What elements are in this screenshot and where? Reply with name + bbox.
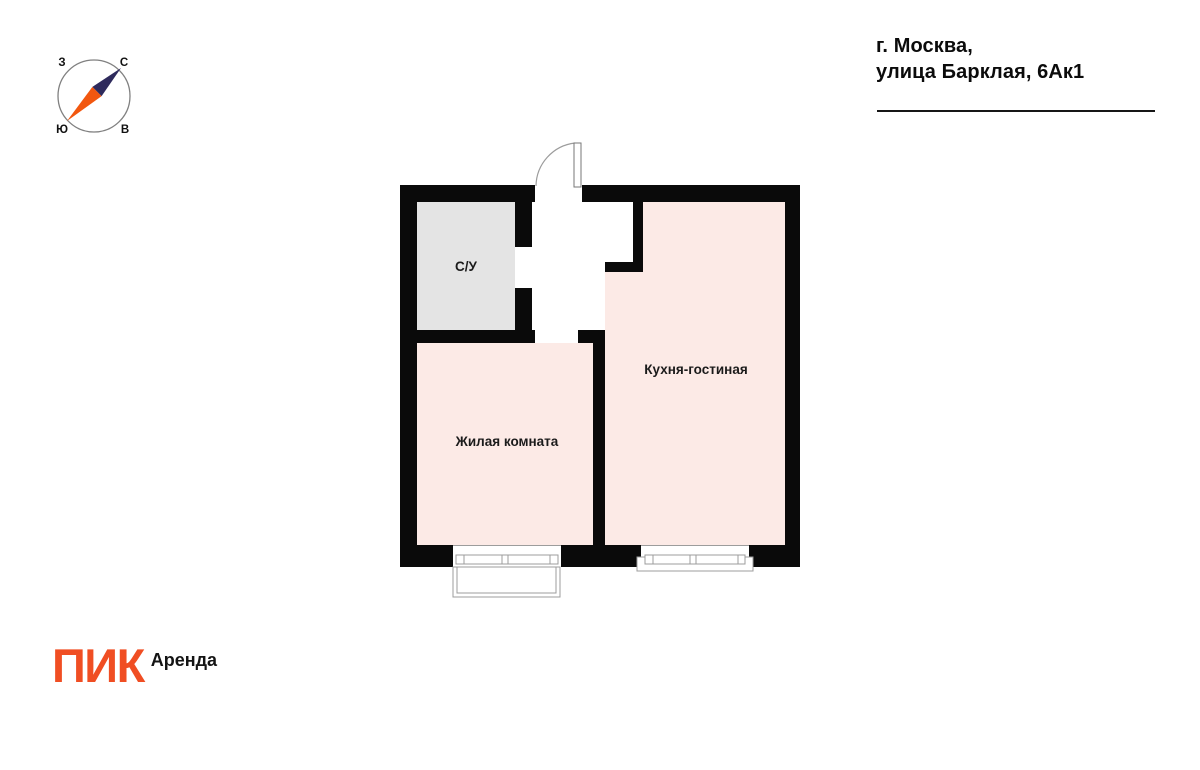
wall-right — [785, 185, 800, 567]
wall-top-right — [582, 185, 800, 202]
room-label-kitchen: Кухня-гостиная — [644, 362, 747, 377]
compass-label-west: З — [58, 57, 65, 69]
compass-label-north: С — [120, 57, 128, 69]
window-living-frame — [456, 555, 558, 564]
compass-label-south: Ю — [56, 124, 68, 136]
wall-bathroom-right-upper — [515, 202, 532, 247]
window-living — [453, 546, 561, 598]
wall-living-kitchen — [593, 330, 605, 545]
pik-logo: ПИК — [52, 643, 144, 689]
wall-kitchen-stub — [605, 262, 643, 272]
compass-label-east: В — [121, 124, 129, 136]
compass-needle-south — [67, 87, 102, 121]
wall-bathroom-bottom — [400, 330, 535, 343]
wall-kitchen-vertical — [633, 202, 643, 272]
compass-rose: З С Ю В — [40, 42, 150, 142]
wall-top-left — [400, 185, 535, 202]
balcony-inner — [457, 567, 556, 593]
room-label-living: Жилая комната — [455, 434, 559, 449]
address-divider — [877, 110, 1155, 112]
floor-plan: С/У Жилая комната Кухня-гостиная — [380, 130, 820, 610]
window-kitchen — [637, 546, 753, 572]
address-line-2: улица Барклая, 6Ак1 — [876, 59, 1166, 85]
room-label-bathroom: С/У — [455, 259, 478, 274]
door-leaf — [574, 143, 581, 187]
wall-bottom-right — [749, 545, 800, 567]
entrance-door — [536, 143, 581, 187]
pik-product-label: Аренда — [151, 650, 217, 670]
wall-left — [400, 185, 417, 567]
brand-footer: ПИК Аренда — [52, 643, 217, 689]
wall-bottom-left — [400, 545, 453, 567]
door-swing-arc — [536, 143, 575, 186]
address-block: г. Москва, улица Барклая, 6Ак1 — [876, 33, 1166, 85]
window-kitchen-frame — [645, 555, 745, 564]
wall-bottom-middle — [561, 545, 641, 567]
address-line-1: г. Москва, — [876, 33, 1166, 59]
